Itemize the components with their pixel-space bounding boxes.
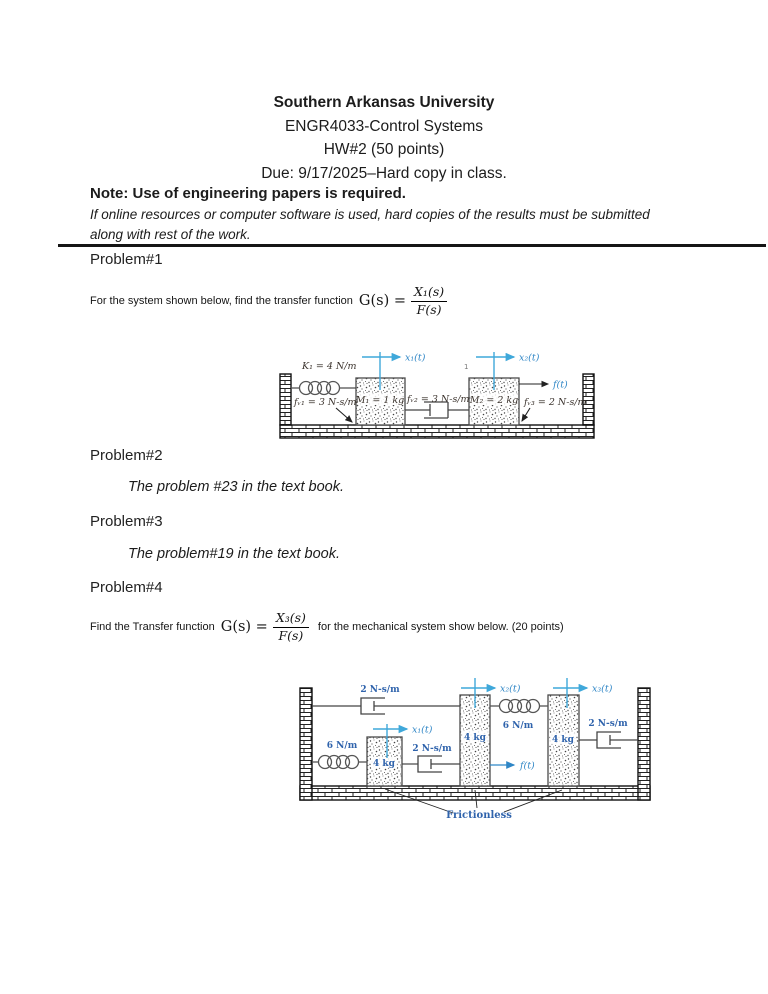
damper-mid	[402, 756, 460, 772]
mass-m1-label: M₁ = 1 kg	[355, 395, 404, 406]
problem4-fraction-numerator: X₃(s)	[273, 611, 309, 627]
problem4-gs: G(s) =	[221, 619, 268, 635]
spring-mid-label: 6 N/m	[503, 721, 534, 731]
damper-mid-label: 2 N-s/m	[412, 744, 452, 754]
damper-right	[579, 732, 638, 748]
spring-left	[312, 756, 367, 769]
mass-m2-label: M₂ = 2 kg	[469, 395, 518, 406]
horizontal-divider	[58, 244, 766, 247]
spring-k1	[291, 382, 356, 395]
problem1-prompt-text: For the system shown below, find the tra…	[90, 295, 353, 307]
friction-fv3-arrow	[522, 408, 530, 421]
x2-label: x₂(t)	[500, 684, 521, 695]
problem3-heading: Problem#3	[90, 513, 163, 530]
note-line: Note: Use of engineering papers is requi…	[90, 185, 406, 202]
header-block: Southern Arkansas University ENGR4033-Co…	[90, 91, 678, 185]
mass1-label: 4 kg	[373, 759, 396, 769]
spring-left-label: 6 N/m	[327, 741, 358, 751]
x2-label: x₂(t)	[519, 353, 540, 364]
problem3-body: The problem#19 in the text book.	[128, 546, 340, 562]
course-title: ENGR4033-Control Systems	[90, 115, 678, 139]
due-date-line: Due: 9/17/2025–Hard copy in class.	[90, 162, 678, 186]
problem4-prompt-row: Find the Transfer function G(s) = X₃(s) …	[90, 607, 564, 647]
problem4-fraction: X₃(s) F(s)	[273, 611, 309, 643]
left-wall-bricks	[300, 688, 312, 800]
x1-label: x₁(t)	[412, 725, 433, 736]
left-wall-bricks	[280, 374, 291, 425]
problem1-fraction: X₁(s) F(s)	[411, 285, 447, 317]
damper-fv2-label: fᵥ₂ = 3 N-s/m	[406, 394, 470, 405]
right-wall-bricks	[638, 688, 650, 800]
damper-top	[312, 698, 460, 714]
mass2-label: 4 kg	[464, 733, 487, 743]
force-label: f(t)	[519, 761, 535, 772]
damper-top-label: 2 N-s/m	[360, 685, 400, 695]
x1-label: x₁(t)	[405, 353, 426, 364]
mass3-label: 4 kg	[552, 735, 575, 745]
floor-bricks	[280, 425, 594, 438]
note-detail-line1: If online resources or computer software…	[90, 207, 650, 222]
x3-label: x₃(t)	[592, 684, 613, 695]
problem1-system-diagram: K₁ = 4 N/m M₁ = 1 kg M₂ = 2 kg fᵥ₂ = 3 N…	[278, 348, 596, 440]
problem1-prompt-row: For the system shown below, find the tra…	[90, 281, 447, 321]
problem1-gs: G(s) =	[359, 293, 406, 309]
problem1-heading: Problem#1	[90, 251, 163, 268]
frictionless-label: Frictionless	[446, 810, 512, 821]
problem1-fraction-denominator: F(s)	[417, 302, 442, 317]
university-title: Southern Arkansas University	[90, 91, 678, 115]
problem4-prompt-suffix: for the mechanical system show below. (2…	[318, 621, 564, 633]
problem4-prompt-text: Find the Transfer function	[90, 621, 215, 633]
problem4-system-diagram: 2 N-s/m 6 N/m 2 N-s/m 6 N/m	[297, 676, 653, 824]
stray-mark: 1	[464, 363, 468, 371]
problem2-heading: Problem#2	[90, 447, 163, 464]
friction-fv1-label: fᵥ₁ = 3 N-s/m	[293, 397, 357, 408]
homework-document-page: Southern Arkansas University ENGR4033-Co…	[0, 0, 768, 994]
note-detail-line2: along with rest of the work.	[90, 227, 251, 242]
damper-right-label: 2 N-s/m	[588, 719, 628, 729]
homework-title: HW#2 (50 points)	[90, 138, 678, 162]
spring-mid	[490, 700, 548, 713]
problem4-fraction-denominator: F(s)	[278, 628, 303, 643]
spring-k1-label: K₁ = 4 N/m	[301, 361, 357, 372]
friction-fv1-arrow	[336, 408, 352, 422]
problem1-fraction-numerator: X₁(s)	[411, 285, 447, 301]
friction-fv3-label: fᵥ₃ = 2 N-s/m	[523, 397, 587, 408]
problem2-body: The problem #23 in the text book.	[128, 479, 344, 495]
force-label: f(t)	[552, 380, 568, 391]
problem4-heading: Problem#4	[90, 579, 163, 596]
